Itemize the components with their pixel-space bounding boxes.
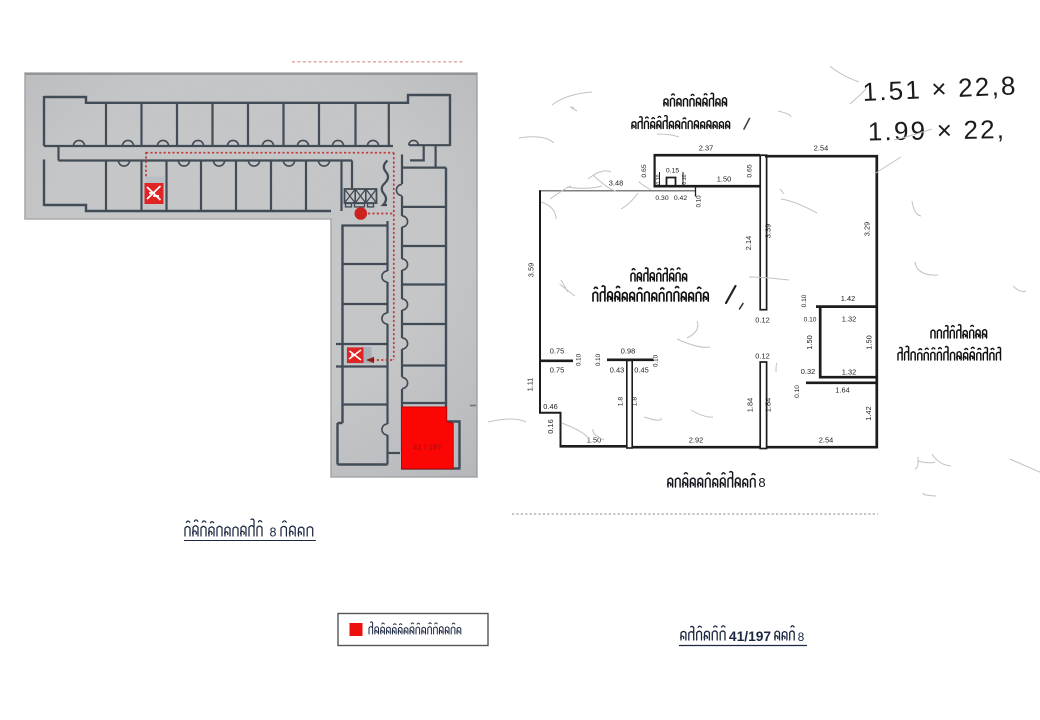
svg-text:1.11: 1.11 xyxy=(526,378,535,392)
svg-text:1.50: 1.50 xyxy=(717,175,731,184)
svg-text:1.84: 1.84 xyxy=(746,398,755,412)
svg-text:1.8: 1.8 xyxy=(632,397,639,407)
svg-text:8: 8 xyxy=(270,526,277,540)
svg-text:0.10: 0.10 xyxy=(653,354,660,367)
svg-text:41/197: 41/197 xyxy=(729,629,772,644)
svg-text:0.32: 0.32 xyxy=(801,367,815,376)
svg-text:1.50: 1.50 xyxy=(805,335,814,349)
svg-text:3.59: 3.59 xyxy=(527,263,536,277)
svg-text:1.99 × 22,: 1.99 × 22, xyxy=(868,114,1007,146)
svg-text:8: 8 xyxy=(798,630,805,644)
svg-text:2.54: 2.54 xyxy=(819,436,833,445)
svg-text:0.98: 0.98 xyxy=(621,347,635,356)
svg-text:0.65: 0.65 xyxy=(641,164,648,177)
svg-text:0.12: 0.12 xyxy=(755,352,769,361)
svg-text:41 / 197: 41 / 197 xyxy=(413,445,442,452)
svg-text:0.30: 0.30 xyxy=(655,195,668,202)
svg-text:3.48: 3.48 xyxy=(609,179,623,188)
svg-text:1.32: 1.32 xyxy=(842,315,856,324)
svg-text:0.10: 0.10 xyxy=(696,195,703,208)
svg-text:3.29: 3.29 xyxy=(863,222,872,236)
svg-text:0.16: 0.16 xyxy=(546,419,555,433)
svg-text:8: 8 xyxy=(758,475,765,490)
svg-text:3.39: 3.39 xyxy=(764,224,773,238)
svg-text:0.15: 0.15 xyxy=(666,168,679,175)
svg-text:1.84: 1.84 xyxy=(764,398,773,412)
svg-text:0.10: 0.10 xyxy=(595,353,602,366)
svg-text:0.10: 0.10 xyxy=(794,385,801,398)
svg-text:1.42: 1.42 xyxy=(864,406,873,420)
svg-text:0.12: 0.12 xyxy=(755,316,769,325)
svg-text:0.65: 0.65 xyxy=(747,164,754,177)
svg-text:2.54: 2.54 xyxy=(814,144,828,153)
svg-text:1.64: 1.64 xyxy=(835,386,849,395)
svg-text:1.8: 1.8 xyxy=(618,397,625,407)
svg-text:1.32: 1.32 xyxy=(842,368,856,377)
svg-text:2.37: 2.37 xyxy=(699,144,713,153)
svg-text:0.10: 0.10 xyxy=(804,317,817,324)
svg-text:0.42: 0.42 xyxy=(674,195,687,202)
svg-text:0.46: 0.46 xyxy=(543,402,557,411)
svg-text:0.75: 0.75 xyxy=(550,366,564,375)
svg-text:0.43: 0.43 xyxy=(610,366,624,375)
svg-text:0.10: 0.10 xyxy=(576,353,583,366)
svg-text:0.10: 0.10 xyxy=(801,294,808,307)
svg-text:0.45: 0.45 xyxy=(634,366,648,375)
svg-text:0.10: 0.10 xyxy=(682,174,688,184)
svg-text:2.92: 2.92 xyxy=(689,436,703,445)
svg-text:0.10: 0.10 xyxy=(656,174,662,184)
svg-text:0.75: 0.75 xyxy=(550,347,564,356)
svg-text:1.50: 1.50 xyxy=(865,335,874,349)
svg-text:1.42: 1.42 xyxy=(841,294,855,303)
svg-text:1.50: 1.50 xyxy=(587,436,601,445)
svg-text:2.14: 2.14 xyxy=(744,236,753,250)
